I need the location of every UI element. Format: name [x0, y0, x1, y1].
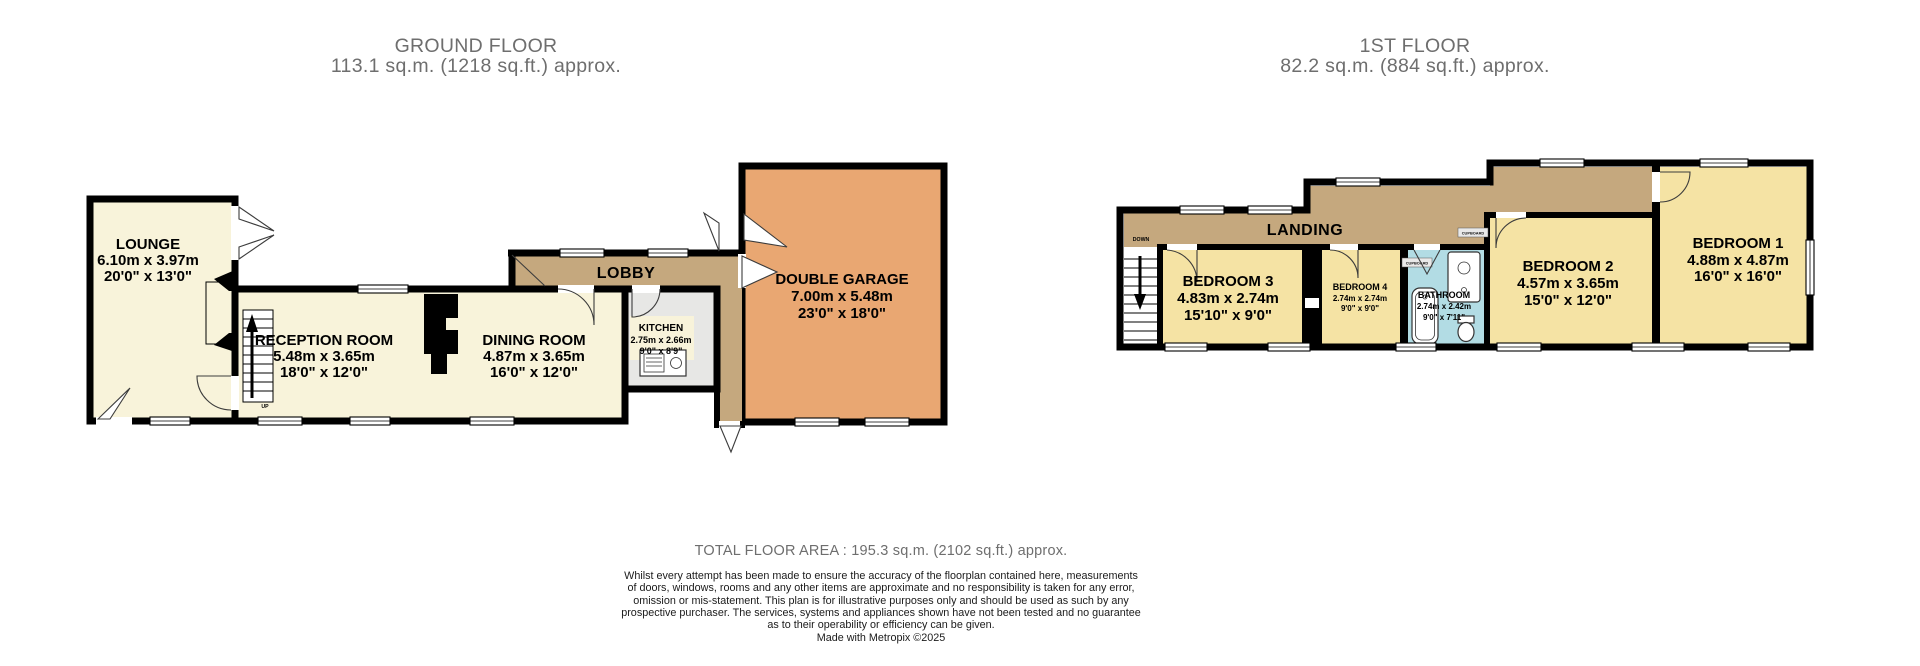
cupboard-label: CUPBOARD: [1462, 230, 1485, 235]
bedroom3-metric: 4.83m x 2.74m: [1177, 290, 1279, 307]
wall: [714, 389, 720, 425]
bathroom-imperial: 9'0" x 7'11": [1423, 313, 1465, 322]
door-swing-icon: [239, 235, 274, 259]
bedroom2-imperial: 15'0" x 12'0": [1524, 292, 1612, 309]
garage-name: DOUBLE GARAGE: [775, 271, 908, 288]
floorplan-canvas: UP: [0, 0, 1920, 666]
cupboard: CUPBOARD: [1402, 258, 1432, 267]
bedroom4-imperial: 9'0" x 9'0": [1341, 304, 1379, 313]
bedroom1-imperial: 16'0" x 16'0": [1694, 268, 1782, 285]
bedroom1-metric: 4.88m x 4.87m: [1687, 252, 1789, 269]
dining-imperial: 16'0" x 12'0": [490, 364, 578, 381]
door-swing-icon: [704, 213, 719, 251]
lounge-name: LOUNGE: [116, 236, 180, 253]
door-swing-icon: [239, 207, 274, 231]
bedroom2-metric: 4.57m x 3.65m: [1517, 275, 1619, 292]
room-landing: [1490, 167, 1660, 213]
stairs-up-label: UP: [261, 404, 269, 410]
kitchen-name: KITCHEN: [639, 323, 683, 334]
wall: [1157, 244, 1163, 347]
staircase-up: [243, 310, 273, 402]
kitchen-imperial: 9'0" x 8'9": [640, 346, 683, 356]
bedroom4-metric: 2.74m x 2.74m: [1333, 294, 1387, 303]
bedroom3-name: BEDROOM 3: [1183, 273, 1274, 290]
disclaimer: Whilst every attempt has been made to en…: [621, 570, 1141, 644]
ground-floor-plan: UP: [90, 166, 944, 452]
reception-metric: 5.48m x 3.65m: [273, 348, 375, 365]
room-lounge: [90, 199, 235, 421]
dining-metric: 4.87m x 3.65m: [483, 348, 585, 365]
door-swing-icon: [720, 426, 741, 452]
cupboard: CUPBOARD: [1458, 228, 1488, 237]
lounge-metric: 6.10m x 3.97m: [97, 252, 199, 269]
disclaimer-line: as to their operability or efficiency ca…: [621, 619, 1141, 631]
lounge-imperial: 20'0" x 13'0": [104, 268, 192, 285]
lobby-name: LOBBY: [597, 265, 656, 282]
disclaimer-line: prospective purchaser. The services, sys…: [621, 607, 1141, 619]
landing-name: LANDING: [1267, 222, 1343, 239]
stairs-down-label: DOWN: [1133, 237, 1150, 243]
disclaimer-line: omission or mis-statement. This plan is …: [621, 595, 1141, 607]
wall: [1302, 244, 1322, 347]
reception-name: RECEPTION ROOM: [255, 332, 393, 349]
reception-imperial: 18'0" x 12'0": [280, 364, 368, 381]
cupboard-label: CUPBOARD: [1406, 260, 1429, 265]
wall-recess: [1305, 298, 1319, 308]
kitchen-metric: 2.75m x 2.66m: [630, 335, 691, 345]
bathroom-metric: 2.74m x 2.42m: [1417, 302, 1471, 311]
garage-imperial: 23'0" x 18'0": [798, 305, 886, 322]
disclaimer-line: Whilst every attempt has been made to en…: [621, 570, 1141, 582]
bedroom4-name: BEDROOM 4: [1333, 282, 1388, 292]
first-floor-plan: DOWN CUPBOARD CUPBOARD: [1120, 159, 1814, 351]
bedroom2-name: BEDROOM 2: [1523, 258, 1614, 275]
bedroom3-imperial: 15'10" x 9'0": [1184, 307, 1272, 324]
floorplan-page: GROUND FLOOR 113.1 sq.m. (1218 sq.ft.) a…: [0, 0, 1920, 666]
garage-metric: 7.00m x 5.48m: [791, 288, 893, 305]
bathroom-name: BATHROOM: [1418, 290, 1470, 300]
credit-line: Made with Metropix ©2025: [621, 632, 1141, 644]
total-floor-area: TOTAL FLOOR AREA : 195.3 sq.m. (2102 sq.…: [695, 543, 1068, 559]
bedroom1-name: BEDROOM 1: [1693, 235, 1784, 252]
dining-name: DINING ROOM: [482, 332, 585, 349]
disclaimer-line: of doors, windows, rooms and any other i…: [621, 582, 1141, 594]
chimney-breast: [431, 354, 447, 374]
